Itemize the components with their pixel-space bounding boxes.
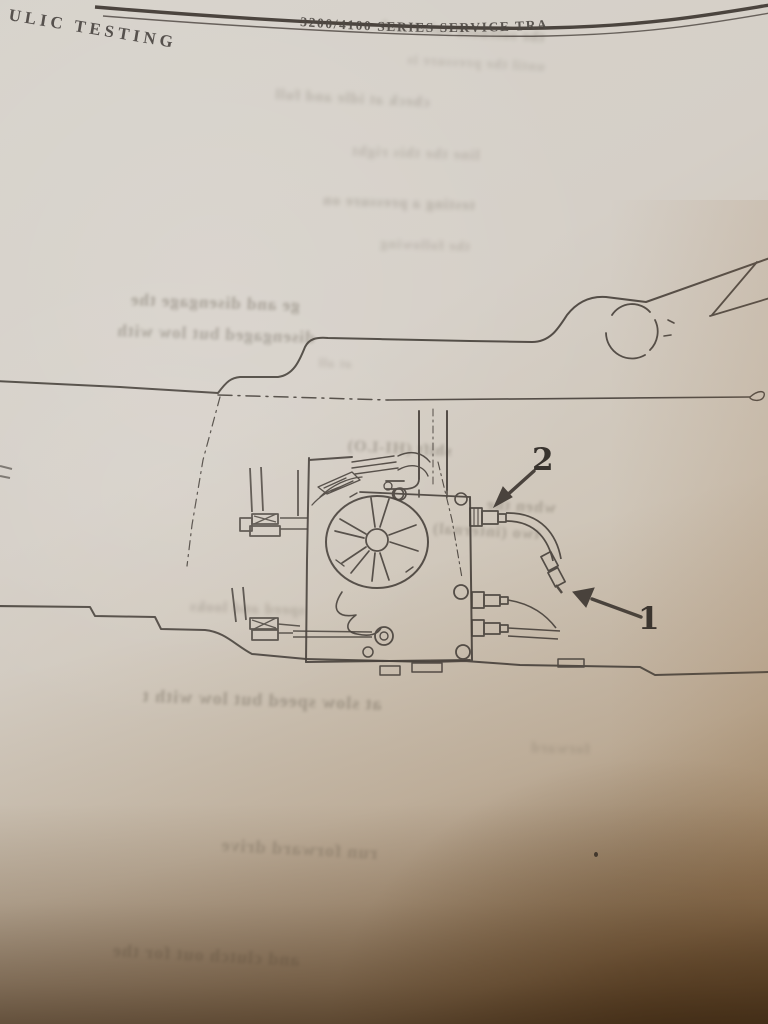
left-fittings <box>232 467 372 640</box>
callout-2-arrow <box>505 471 534 497</box>
callout-1-arrowhead <box>573 588 594 607</box>
margin-marks <box>0 466 12 478</box>
callout-1-arrow <box>592 599 641 617</box>
hydraulic-test-diagram: ULIC TESTING 3200/4100 SERIES SERVICE TR… <box>0 0 768 1024</box>
callout-arrows <box>494 471 641 617</box>
paper-speck <box>594 852 598 857</box>
manual-page-photo: the solenoid valve and until the pressur… <box>0 0 768 1024</box>
callout-1-label: 1 <box>638 601 660 637</box>
test-ports <box>470 508 565 639</box>
callout-2-arrowhead <box>494 487 512 507</box>
callout-2-label: 2 <box>532 442 554 478</box>
fan-wheel <box>326 493 428 588</box>
